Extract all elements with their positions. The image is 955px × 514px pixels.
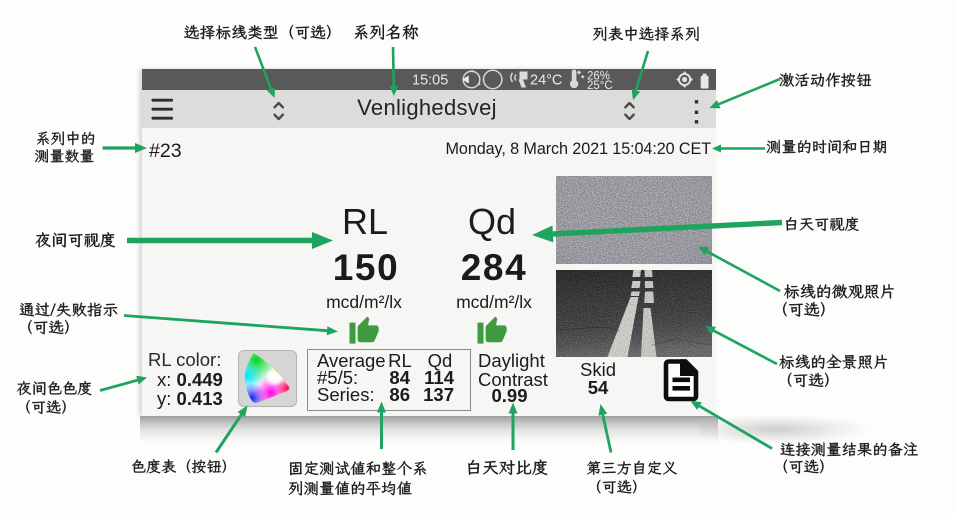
svg-text:24°C: 24°C	[530, 73, 562, 89]
svg-text:15:05: 15:05	[412, 73, 448, 89]
svg-text:25°C: 25°C	[587, 80, 613, 92]
